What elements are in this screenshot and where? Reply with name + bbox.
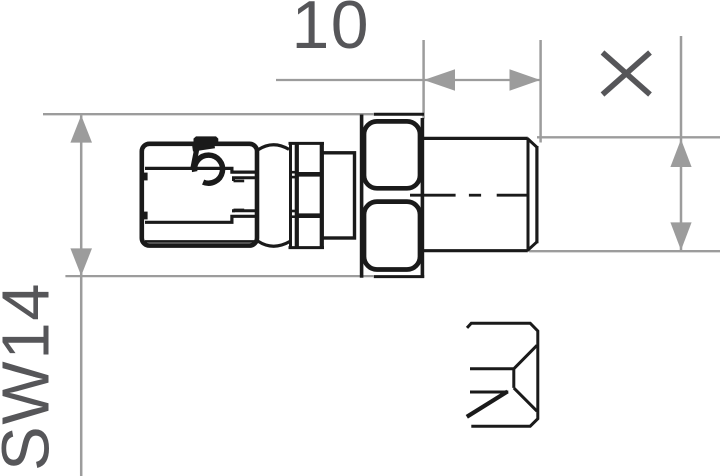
svg-text:SW14: SW14	[0, 282, 63, 471]
svg-text:10: 10	[291, 0, 370, 63]
